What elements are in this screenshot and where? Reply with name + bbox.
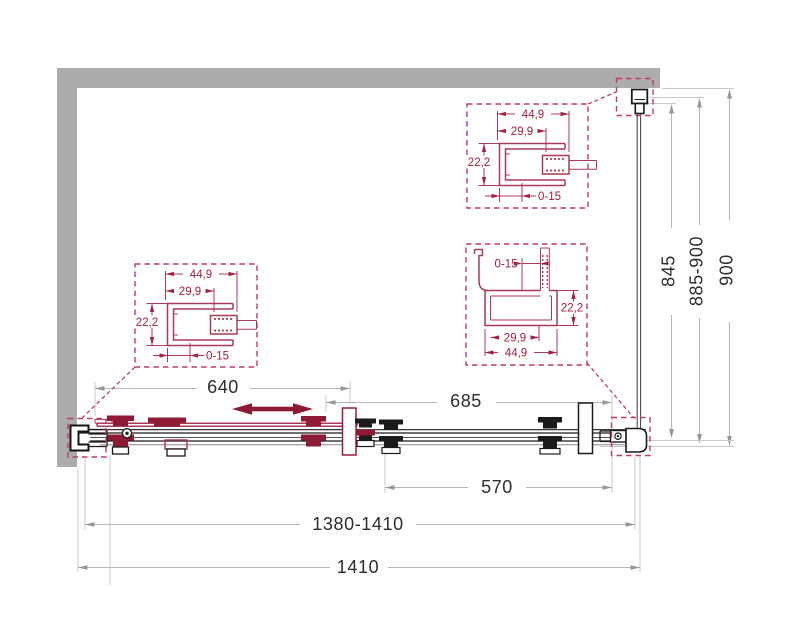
fixed-panel-profile — [579, 403, 593, 454]
door-interlock — [355, 419, 376, 447]
slide-direction-arrow-icon — [232, 403, 313, 414]
door-travel-label: 640 — [207, 377, 239, 397]
right-profile-width-label: 44,9 — [505, 348, 527, 360]
right-profile-inner-width-label: 29,9 — [504, 333, 526, 345]
door-roller-right — [301, 416, 326, 447]
detail-callout-top: 44,9 29,9 22,2 0-15 — [466, 104, 597, 208]
fixed-door-roller-right — [538, 417, 562, 454]
detail-callout-right: 0-15 22,2 29,9 44,9 — [466, 244, 587, 365]
top-wall-profile-bracket — [632, 90, 648, 114]
wall-section — [57, 68, 660, 467]
door-panel-label: 685 — [450, 391, 482, 411]
dim-door-travel-640: 640 — [95, 377, 350, 416]
leader-top-callout — [588, 92, 616, 104]
shower-enclosure-drawing: 900 885-900 845 — [0, 0, 800, 639]
dim-side-glass-845: 845 — [648, 104, 679, 439]
top-profile-adjustment-label: 0-15 — [538, 191, 561, 203]
top-profile-inner-width-label: 29,9 — [511, 126, 533, 138]
left-profile-width-label: 44,9 — [190, 269, 212, 281]
leader-left-callout — [82, 367, 135, 418]
left-profile-adjustment-label: 0-15 — [206, 351, 229, 363]
door-assembly — [71, 403, 647, 456]
fixed-door-roller-left — [379, 420, 403, 454]
top-profile-depth-label: 22,2 — [468, 157, 490, 169]
door-handle-profile — [343, 408, 357, 455]
corner-bracket — [600, 429, 647, 453]
width-overall-label: 1410 — [337, 557, 379, 577]
technical-drawing-canvas: 900 885-900 845 — [0, 0, 800, 639]
leader-right-callout — [587, 363, 634, 418]
top-profile-width-label: 44,9 — [522, 109, 544, 121]
side-glass-panel — [637, 114, 640, 431]
dim-fixed-panel-570: 570 — [385, 452, 612, 497]
width-adjustable-label: 1380-1410 — [312, 514, 403, 534]
right-profile-adjustment-label: 0-15 — [494, 259, 517, 271]
side-glass-height-label: 845 — [659, 255, 679, 287]
depth-adjustable-label: 885-900 — [687, 236, 707, 306]
fixed-panel-label: 570 — [481, 477, 513, 497]
left-profile-inner-width-label: 29,9 — [179, 286, 201, 298]
detail-callout-left: 44,9 29,9 22,2 0-15 — [134, 264, 257, 367]
depth-overall-label: 900 — [717, 254, 737, 286]
right-profile-depth-label: 22,2 — [561, 303, 583, 315]
left-profile-depth-label: 22,2 — [136, 317, 158, 329]
